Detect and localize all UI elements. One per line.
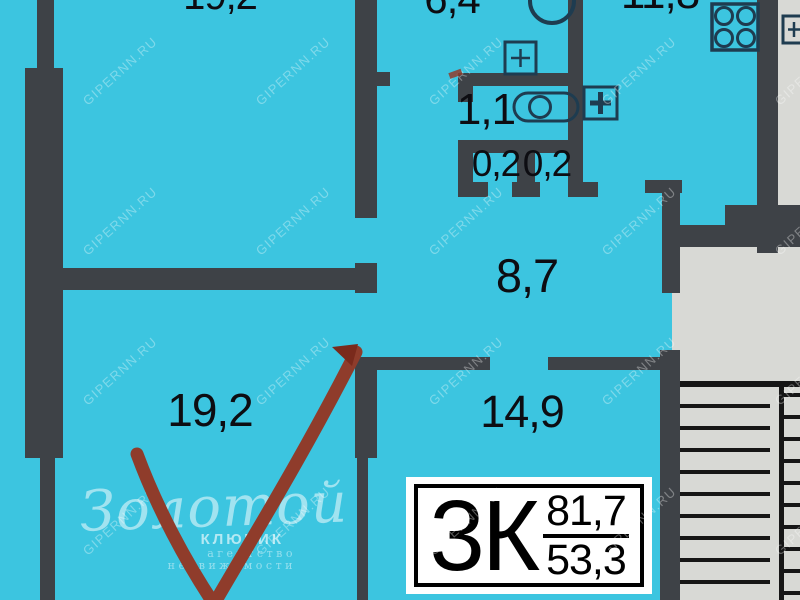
red-check-mark (0, 0, 800, 600)
check-mark-stroke (137, 352, 356, 600)
floor-plan: 19,2 6,4 11,8 1,1 0,2 0,2 8,7 19,2 14,9 … (0, 0, 800, 600)
red-pen-artifact (448, 69, 462, 79)
